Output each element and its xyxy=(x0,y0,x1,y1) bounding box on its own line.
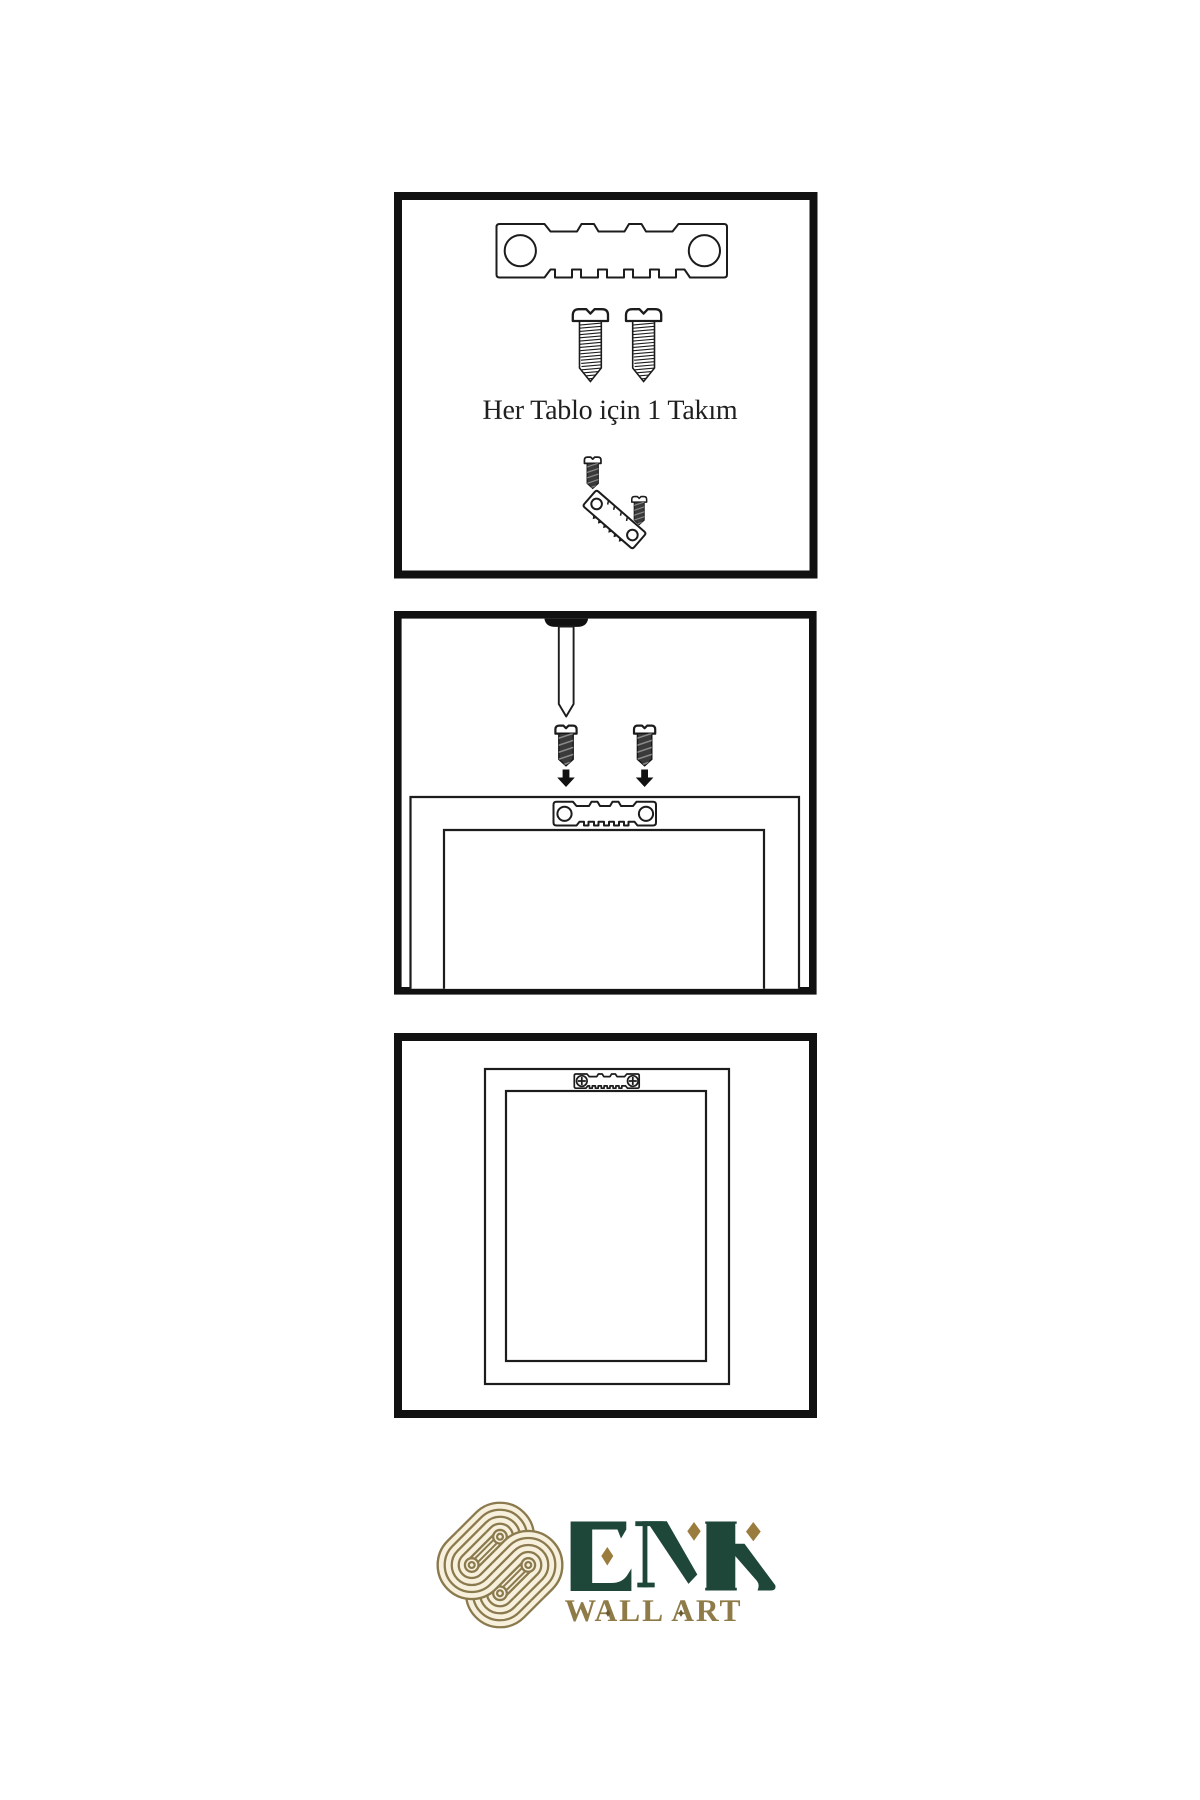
svg-text:WALL ART: WALL ART xyxy=(565,1593,743,1628)
svg-text:Her Tablo için 1 Takım: Her Tablo için 1 Takım xyxy=(482,395,737,426)
